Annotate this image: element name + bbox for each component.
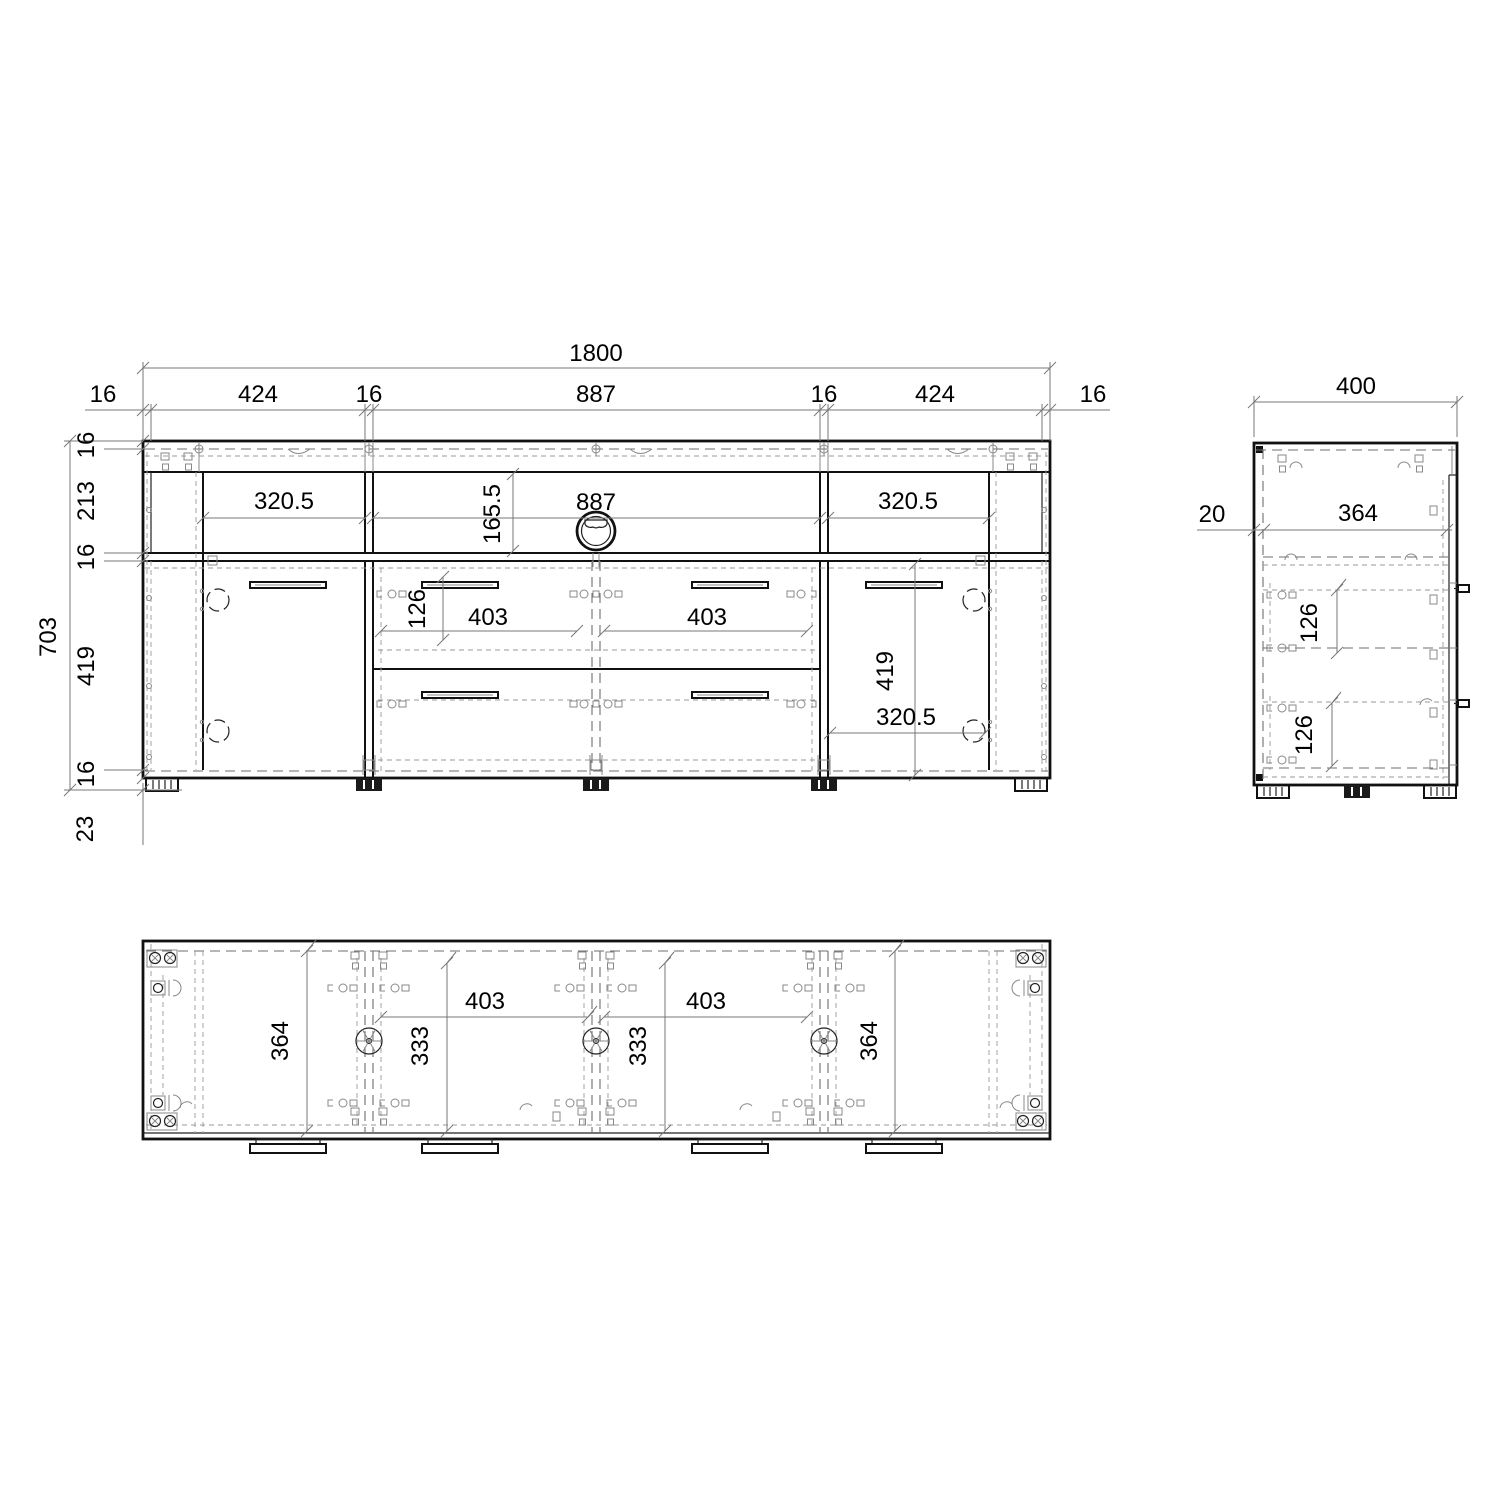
dim-front-seg-3: 887 [576, 381, 616, 408]
dim-side-overall-depth: 400 [1336, 373, 1376, 400]
dim-front-hseg-0: 16 [73, 432, 100, 459]
paper-background [0, 0, 1500, 1500]
furniture-dimension-drawing: 1800 16 424 16 887 16 424 16 703 [0, 0, 1500, 1500]
dim-side-inner-depth: 364 [1338, 500, 1378, 527]
dim-front-topleft-compartment: 320.5 [254, 488, 314, 515]
dim-bottom-drawer-width-left: 403 [465, 988, 505, 1015]
dim-side-back-offset: 20 [1199, 501, 1226, 528]
dim-front-drawer-height: 126 [404, 589, 431, 629]
dim-bottom-drawer-depth-left: 333 [407, 1026, 434, 1066]
dim-front-plinth-height: 23 [72, 816, 99, 843]
dim-front-hseg-1: 213 [73, 481, 100, 521]
dim-front-door-width: 320.5 [876, 704, 936, 731]
dim-front-hseg-2: 16 [73, 544, 100, 571]
dim-front-seg-2: 16 [356, 381, 383, 408]
door-handle-left [250, 582, 326, 588]
dim-front-seg-6: 16 [1080, 381, 1107, 408]
dim-front-drawer-width-right: 403 [687, 604, 727, 631]
dim-front-overall-width: 1800 [569, 340, 622, 367]
dim-front-open-height: 165.5 [479, 484, 506, 544]
dim-front-overall-height: 703 [35, 617, 62, 657]
dim-front-hseg-3: 419 [73, 646, 100, 686]
dim-bottom-right-depth: 364 [856, 1021, 883, 1061]
dim-bottom-drawer-depth-right: 333 [625, 1026, 652, 1066]
dim-front-door-height: 419 [872, 651, 899, 691]
dim-front-seg-4: 16 [811, 381, 838, 408]
technical-drawing-page: 1800 16 424 16 887 16 424 16 703 [0, 0, 1500, 1500]
dim-bottom-drawer-width-right: 403 [686, 988, 726, 1015]
dim-front-open-width: 887 [576, 489, 616, 516]
dim-front-seg-5: 424 [915, 381, 955, 408]
dim-front-drawer-width-left: 403 [468, 604, 508, 631]
dim-front-topright-compartment: 320.5 [878, 488, 938, 515]
dim-side-lower-drawer: 126 [1291, 715, 1318, 755]
drawer1-handle-right [692, 582, 768, 588]
drawer2-handle-left [422, 692, 498, 698]
dim-front-seg-1: 424 [238, 381, 278, 408]
dim-front-seg-0: 16 [90, 381, 117, 408]
dim-bottom-left-depth: 364 [267, 1021, 294, 1061]
drawer1-handle-left [422, 582, 498, 588]
dim-front-hseg-4: 16 [73, 761, 100, 788]
dim-side-upper-drawer: 126 [1296, 603, 1323, 643]
drawer2-handle-right [692, 692, 768, 698]
door-handle-right [866, 582, 942, 588]
